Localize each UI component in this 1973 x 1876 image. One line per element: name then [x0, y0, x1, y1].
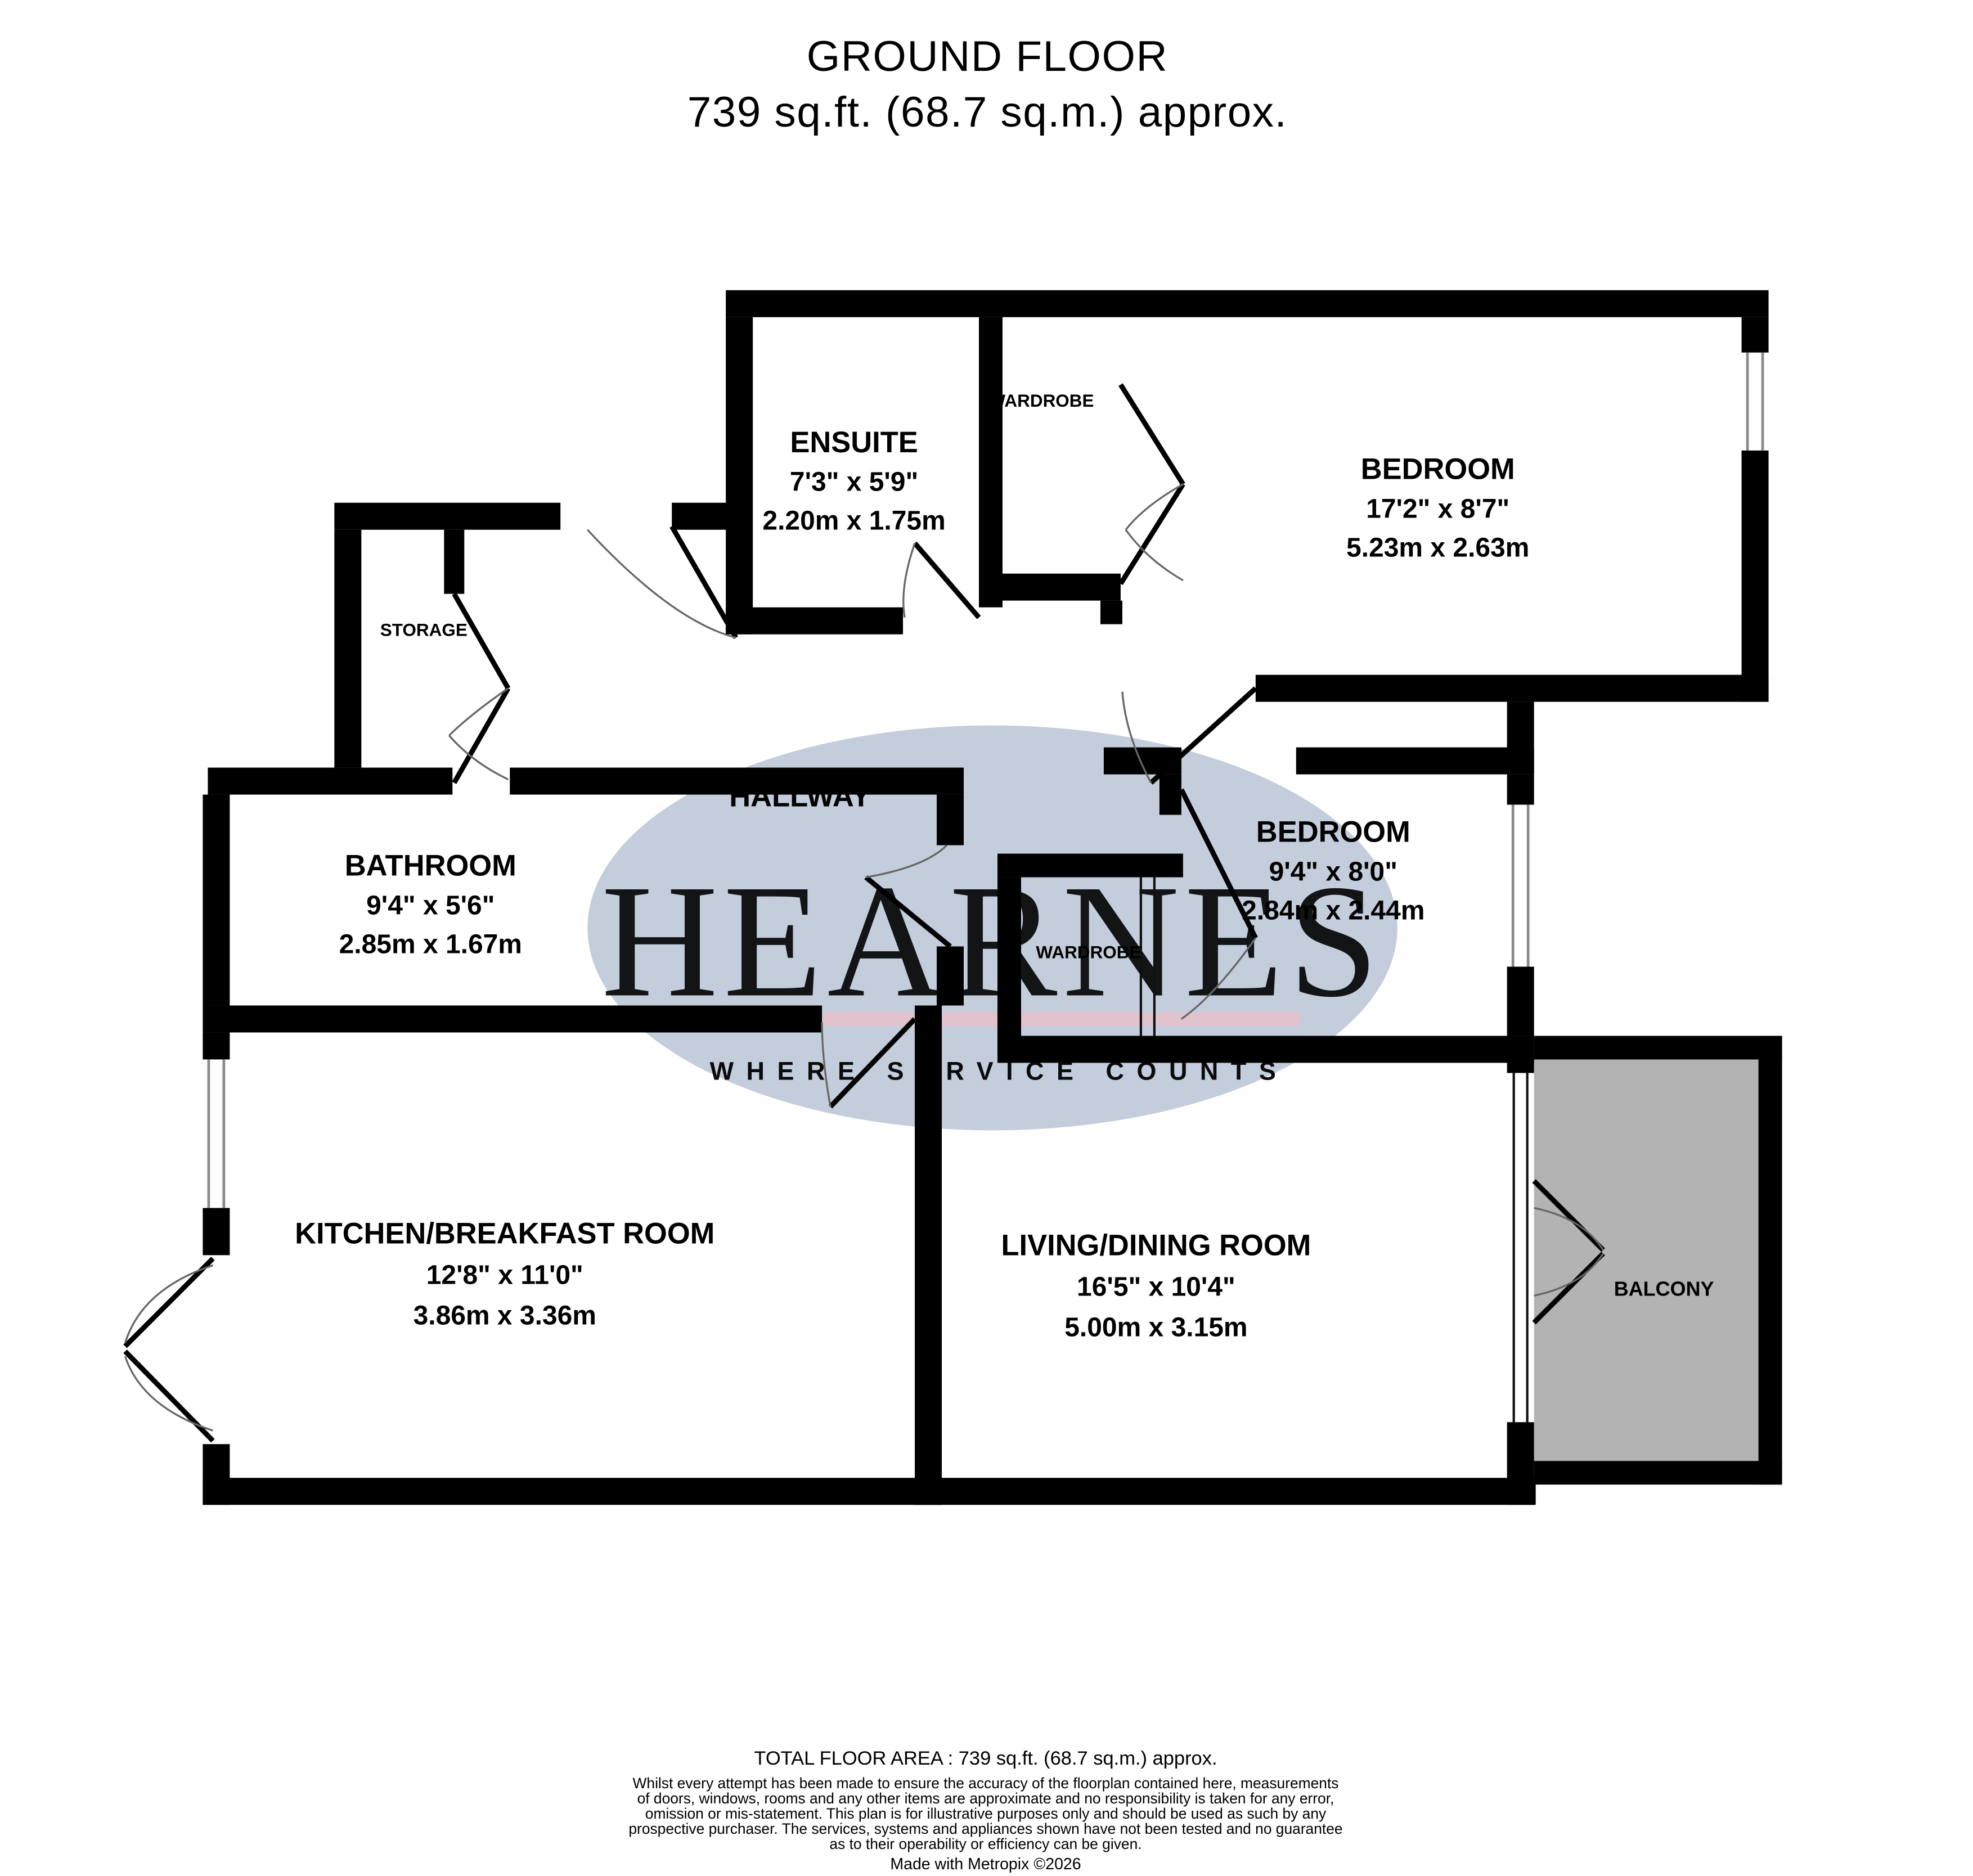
room-name: BEDROOM	[1361, 453, 1515, 486]
wall-segment	[208, 768, 452, 795]
wall-segment	[1507, 775, 1534, 805]
room-name: LIVING/DINING ROOM	[1001, 1229, 1311, 1262]
wall-segment	[203, 1478, 942, 1505]
wall-segment	[1507, 966, 1534, 1036]
wall-segment	[1159, 775, 1181, 815]
wall-segment	[334, 503, 560, 530]
disclaimer-line: prospective purchaser. The services, sys…	[628, 1820, 1342, 1837]
room-name: BATHROOM	[345, 849, 516, 883]
wall-segment	[726, 608, 903, 635]
bathroom-label: BATHROOM 9'4" x 5'6" 2.85m x 1.67m	[339, 849, 522, 960]
wall-segment	[203, 1208, 230, 1255]
total-floor-area: TOTAL FLOOR AREA : 739 sq.ft. (68.7 sq.m…	[754, 1748, 1217, 1769]
balcony-label: BALCONY	[1614, 1277, 1714, 1300]
room-name: BEDROOM	[1256, 816, 1410, 849]
wall-segment	[672, 503, 732, 530]
room-dim-metric: 2.20m x 1.75m	[762, 506, 945, 536]
storage-label: STORAGE	[380, 620, 468, 640]
room-dim-metric: 3.86m x 3.36m	[414, 1301, 596, 1330]
wall-segment	[1507, 1036, 1534, 1073]
room-dim-metric: 5.00m x 3.15m	[1064, 1312, 1247, 1342]
wardrobe-top-label: WARDROBE	[988, 390, 1094, 411]
wall-segment	[997, 878, 1021, 1063]
wall-segment	[203, 1005, 822, 1032]
wall-segment	[726, 317, 753, 635]
watermark-name: HEARNES	[601, 851, 1384, 1031]
floorplan-page: GROUND FLOOR 739 sq.ft. (68.7 sq.m.) app…	[0, 0, 1973, 1876]
kitchen-window	[203, 1059, 230, 1208]
room-dim-imperial: 16'5" x 10'4"	[1077, 1272, 1235, 1302]
wall-segment	[1742, 451, 1769, 702]
wall-segment	[1100, 601, 1122, 624]
room-name: KITCHEN/BREAKFAST ROOM	[295, 1217, 714, 1250]
wall-segment	[1256, 675, 1769, 702]
wall-segment	[979, 317, 1003, 608]
wall-segment	[915, 1005, 942, 1505]
floorplan-canvas: GROUND FLOOR 739 sq.ft. (68.7 sq.m.) app…	[0, 0, 1973, 1876]
bedroom2-window	[1507, 805, 1534, 967]
bedroom1-window	[1742, 353, 1769, 451]
bedroom1-label: BEDROOM 17'2" x 8'7" 5.23m x 2.63m	[1346, 453, 1529, 563]
disclaimer-line: Whilst every attempt has been made to en…	[633, 1775, 1339, 1792]
wall-segment	[997, 1036, 1534, 1063]
title-line2: 739 sq.ft. (68.7 sq.m.) approx.	[687, 88, 1288, 136]
room-dim-metric: 5.23m x 2.63m	[1346, 533, 1529, 563]
wall-segment	[1104, 748, 1181, 775]
wall-segment	[444, 530, 464, 594]
title-line1: GROUND FLOOR	[807, 33, 1168, 80]
hallway-label: HALLWAY	[729, 780, 871, 813]
wall-segment	[1742, 317, 1769, 353]
wall-segment	[203, 1032, 230, 1059]
wall-segment	[1507, 1422, 1534, 1505]
disclaimer-line: omission or mis-statement. This plan is …	[645, 1805, 1327, 1822]
wall-segment	[334, 530, 361, 768]
room-dim-imperial: 17'2" x 8'7"	[1366, 494, 1509, 524]
wall-segment	[1296, 748, 1534, 775]
wall-segment	[997, 854, 1183, 878]
room-dim-imperial: 12'8" x 11'0"	[426, 1260, 583, 1290]
wardrobe-middle-label: WARDROBE	[1036, 942, 1141, 962]
disclaimer-line: as to their operability or efficiency ca…	[829, 1835, 1141, 1852]
room-dim-imperial: 9'4" x 8'0"	[1269, 857, 1397, 887]
wall-segment	[1759, 1036, 1782, 1484]
wall-segment	[726, 290, 1768, 317]
wall-segment	[203, 795, 230, 1006]
metropix-credit: Made with Metropix ©2026	[890, 1855, 1081, 1873]
wall-segment	[937, 795, 964, 845]
wall-segment	[1534, 1036, 1782, 1059]
wall-segment	[937, 946, 964, 1005]
room-dim-metric: 2.84m x 2.44m	[1242, 896, 1424, 926]
room-name: ENSUITE	[790, 426, 918, 459]
disclaimer-line: of doors, windows, rooms and any other i…	[637, 1790, 1334, 1807]
bedroom2-label: BEDROOM 9'4" x 8'0" 2.84m x 2.44m	[1242, 816, 1424, 926]
room-dim-imperial: 9'4" x 5'6"	[366, 891, 495, 921]
room-dim-metric: 2.85m x 1.67m	[339, 929, 522, 959]
room-dim-imperial: 7'3" x 5'9"	[790, 467, 918, 497]
wall-segment	[1003, 574, 1121, 601]
balcony-floor	[1534, 1046, 1759, 1464]
wall-segment	[1534, 1461, 1782, 1484]
wall-segment	[915, 1478, 1536, 1505]
